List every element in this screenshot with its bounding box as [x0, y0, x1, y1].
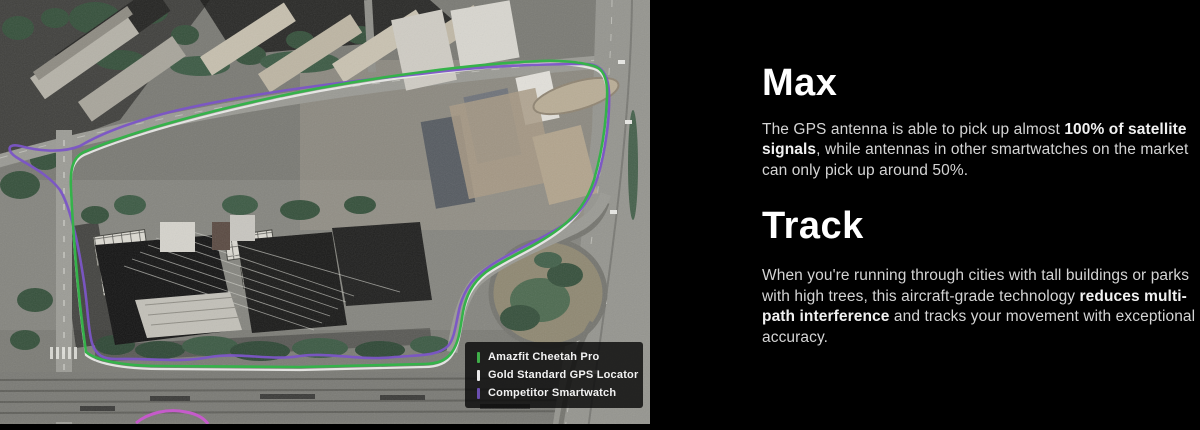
- gps-feature-section: Amazfit Cheetah ProGold Standard GPS Loc…: [0, 0, 1200, 430]
- legend-item: Amazfit Cheetah Pro: [477, 351, 633, 363]
- legend-label: Amazfit Cheetah Pro: [488, 351, 599, 363]
- legend-item: Gold Standard GPS Locator: [477, 369, 633, 381]
- feature-text-column: Max The GPS antenna is able to pick up a…: [762, 0, 1196, 348]
- section-paragraph-track: When you're running through cities with …: [762, 266, 1196, 348]
- track-legend: Amazfit Cheetah ProGold Standard GPS Loc…: [465, 342, 643, 408]
- legend-color-swatch: [477, 352, 480, 363]
- section-paragraph-max: The GPS antenna is able to pick up almos…: [762, 120, 1196, 182]
- legend-color-swatch: [477, 370, 480, 381]
- legend-label: Gold Standard GPS Locator: [488, 369, 638, 381]
- section-heading-track: Track: [762, 205, 1196, 248]
- legend-label: Competitor Smartwatch: [488, 387, 616, 399]
- legend-color-swatch: [477, 388, 480, 399]
- satellite-map: Amazfit Cheetah ProGold Standard GPS Loc…: [0, 0, 650, 430]
- section-heading-max: Max: [762, 62, 1196, 105]
- legend-item: Competitor Smartwatch: [477, 387, 633, 399]
